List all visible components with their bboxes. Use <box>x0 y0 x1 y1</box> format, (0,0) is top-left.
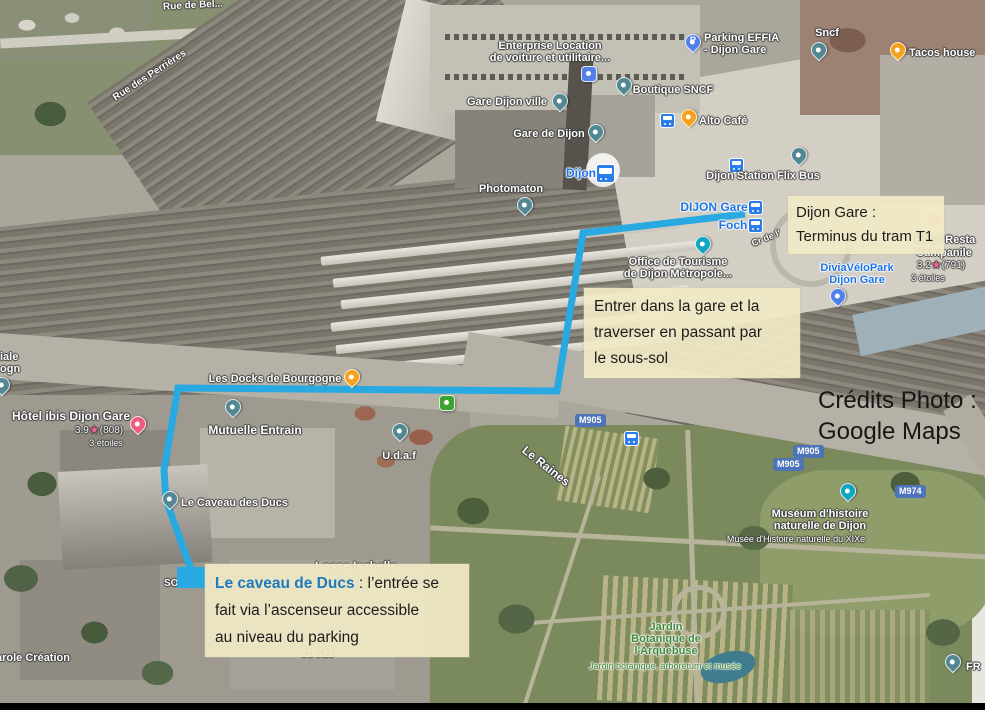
poi-tram-dijon-gare[interactable]: DIJON Gare <box>680 201 747 213</box>
poi-alto-cafe[interactable]: Alto Café <box>699 115 747 127</box>
mutuelle-pin[interactable] <box>225 399 241 421</box>
tacos-house-pin[interactable] <box>890 42 906 64</box>
poi-enterprise-location[interactable]: Enterprise Locationde voiture et utilita… <box>490 40 610 64</box>
bus-icon[interactable] <box>660 113 675 128</box>
museum-sub: Musée d'Histoire naturelle du XIXe <box>727 533 865 545</box>
poi-fr[interactable]: FR <box>966 661 981 673</box>
tourisme-pin[interactable] <box>695 236 711 258</box>
ibis-stars: 3 étoiles <box>89 437 123 449</box>
route-endpoint-square <box>177 567 206 588</box>
note-tram-terminus: Dijon Gare : Terminus du tram T1 <box>788 196 944 254</box>
caveau-highlight: Le caveau de Ducs <box>215 575 355 592</box>
poi-boutique-sncf[interactable]: Boutique SNCF <box>633 84 714 96</box>
map-screenshot: Rue de Bel... Rue des Perrières Cr de l'… <box>0 0 985 710</box>
poi-flixbus[interactable]: Dijon Station Flix Bus <box>706 170 820 182</box>
poi-parking-effia[interactable]: Parking EFFIA- Dijon Gare <box>704 32 779 56</box>
fr-pin[interactable] <box>945 654 961 676</box>
ibis-rating[interactable]: 3.9(808) <box>75 424 123 437</box>
gare-de-dijon-pin[interactable] <box>588 124 604 146</box>
poi-udaf[interactable]: U.d.a.f <box>382 450 416 462</box>
poi-caveau-des-ducs[interactable]: Le Caveau des Ducs <box>181 497 288 509</box>
sncf-pin[interactable] <box>811 42 827 64</box>
poi-hotel-ibis[interactable]: Hôtel ibis Dijon Gare <box>12 410 130 422</box>
poi-dijon-station[interactable]: Dijon <box>566 167 596 179</box>
bus-icon[interactable] <box>624 431 639 446</box>
photo-credits: Crédits Photo : Google Maps <box>818 385 977 447</box>
caveau-pin[interactable] <box>162 491 178 513</box>
flixbus-pin[interactable] <box>791 147 807 169</box>
boutique-sncf-pin[interactable] <box>616 77 632 99</box>
road-shield-m974: M974 <box>895 485 926 498</box>
gare-dijon-ville-pin[interactable] <box>552 93 568 115</box>
road-shield-m905: M905 <box>773 458 804 471</box>
road-shield-m905: M905 <box>575 414 606 427</box>
photomaton-pin[interactable] <box>517 197 533 219</box>
street-frag-iale: iale <box>0 351 18 363</box>
park-flower-pin[interactable] <box>439 395 455 417</box>
jardin-sub: Jardin botanique, arboretum et musée <box>589 660 741 672</box>
note-caveau: Le caveau de Ducs : l’entrée se fait via… <box>205 564 469 657</box>
tram-icon[interactable] <box>748 200 763 215</box>
poi-museum[interactable]: Muséum d'histoirenaturelle de Dijon <box>772 508 869 532</box>
poi-mutuelle-entrain[interactable]: Mutuelle Entrain <box>208 424 301 436</box>
museum-pin[interactable] <box>840 483 856 505</box>
poi-tram-foch[interactable]: Foch <box>719 219 748 231</box>
train-station-icon[interactable] <box>596 164 615 183</box>
docks-pin[interactable] <box>344 369 360 391</box>
star-icon <box>89 424 100 436</box>
parking-effia-pin[interactable]: P <box>685 34 701 56</box>
ibis-pin[interactable] <box>130 416 146 438</box>
poi-office-tourisme[interactable]: Office de Tourismede Dijon Métropole... <box>624 256 732 280</box>
udaf-pin[interactable] <box>392 423 408 445</box>
divia-pin[interactable] <box>830 288 846 310</box>
poi-photomaton[interactable]: Photomaton <box>479 183 543 195</box>
poi-divia-velopark[interactable]: DiviaVéloParkDijon Gare <box>820 262 893 286</box>
campanile-rating[interactable]: 3.2(791) <box>917 259 965 272</box>
edge-pin[interactable] <box>0 377 10 399</box>
poi-les-docks[interactable]: Les Docks de Bourgogne <box>209 373 342 385</box>
poi-jardin-botanique[interactable]: JardinBotanique del'Arquebuse <box>631 621 701 657</box>
car-rental-pin[interactable] <box>581 66 597 88</box>
poi-gare-dijon-ville[interactable]: Gare Dijon ville <box>467 96 547 108</box>
note-traverser-gare: Entrer dans la gare et la traverser en p… <box>584 288 800 378</box>
street-frag-ogn: ogn <box>0 363 20 375</box>
tram-icon[interactable] <box>748 218 763 233</box>
poi-tacos-house[interactable]: Tacos house <box>909 47 975 59</box>
poi-sncf[interactable]: Sncf <box>815 27 839 39</box>
bottom-black-bar <box>0 703 985 710</box>
alto-cafe-pin[interactable] <box>681 109 697 131</box>
poi-gare-de-dijon[interactable]: Gare de Dijon <box>513 128 585 140</box>
star-icon <box>931 259 942 271</box>
campanile-stars: 3 étoiles <box>911 272 945 284</box>
street-carole-creation: arole Création <box>0 652 70 664</box>
